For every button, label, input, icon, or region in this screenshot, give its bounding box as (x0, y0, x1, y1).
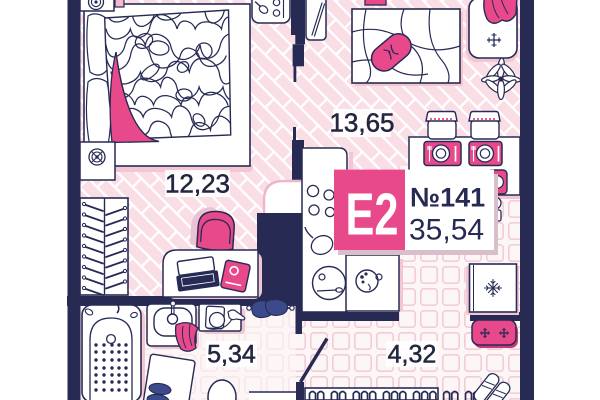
svg-text:35,54: 35,54 (409, 214, 484, 247)
svg-text:13,65: 13,65 (329, 108, 394, 138)
svg-text:12,23: 12,23 (165, 169, 230, 199)
svg-text:E2: E2 (346, 182, 399, 248)
svg-text:4,32: 4,32 (388, 341, 437, 369)
svg-text:№141: №141 (410, 183, 485, 213)
svg-text:5,34: 5,34 (207, 341, 256, 369)
